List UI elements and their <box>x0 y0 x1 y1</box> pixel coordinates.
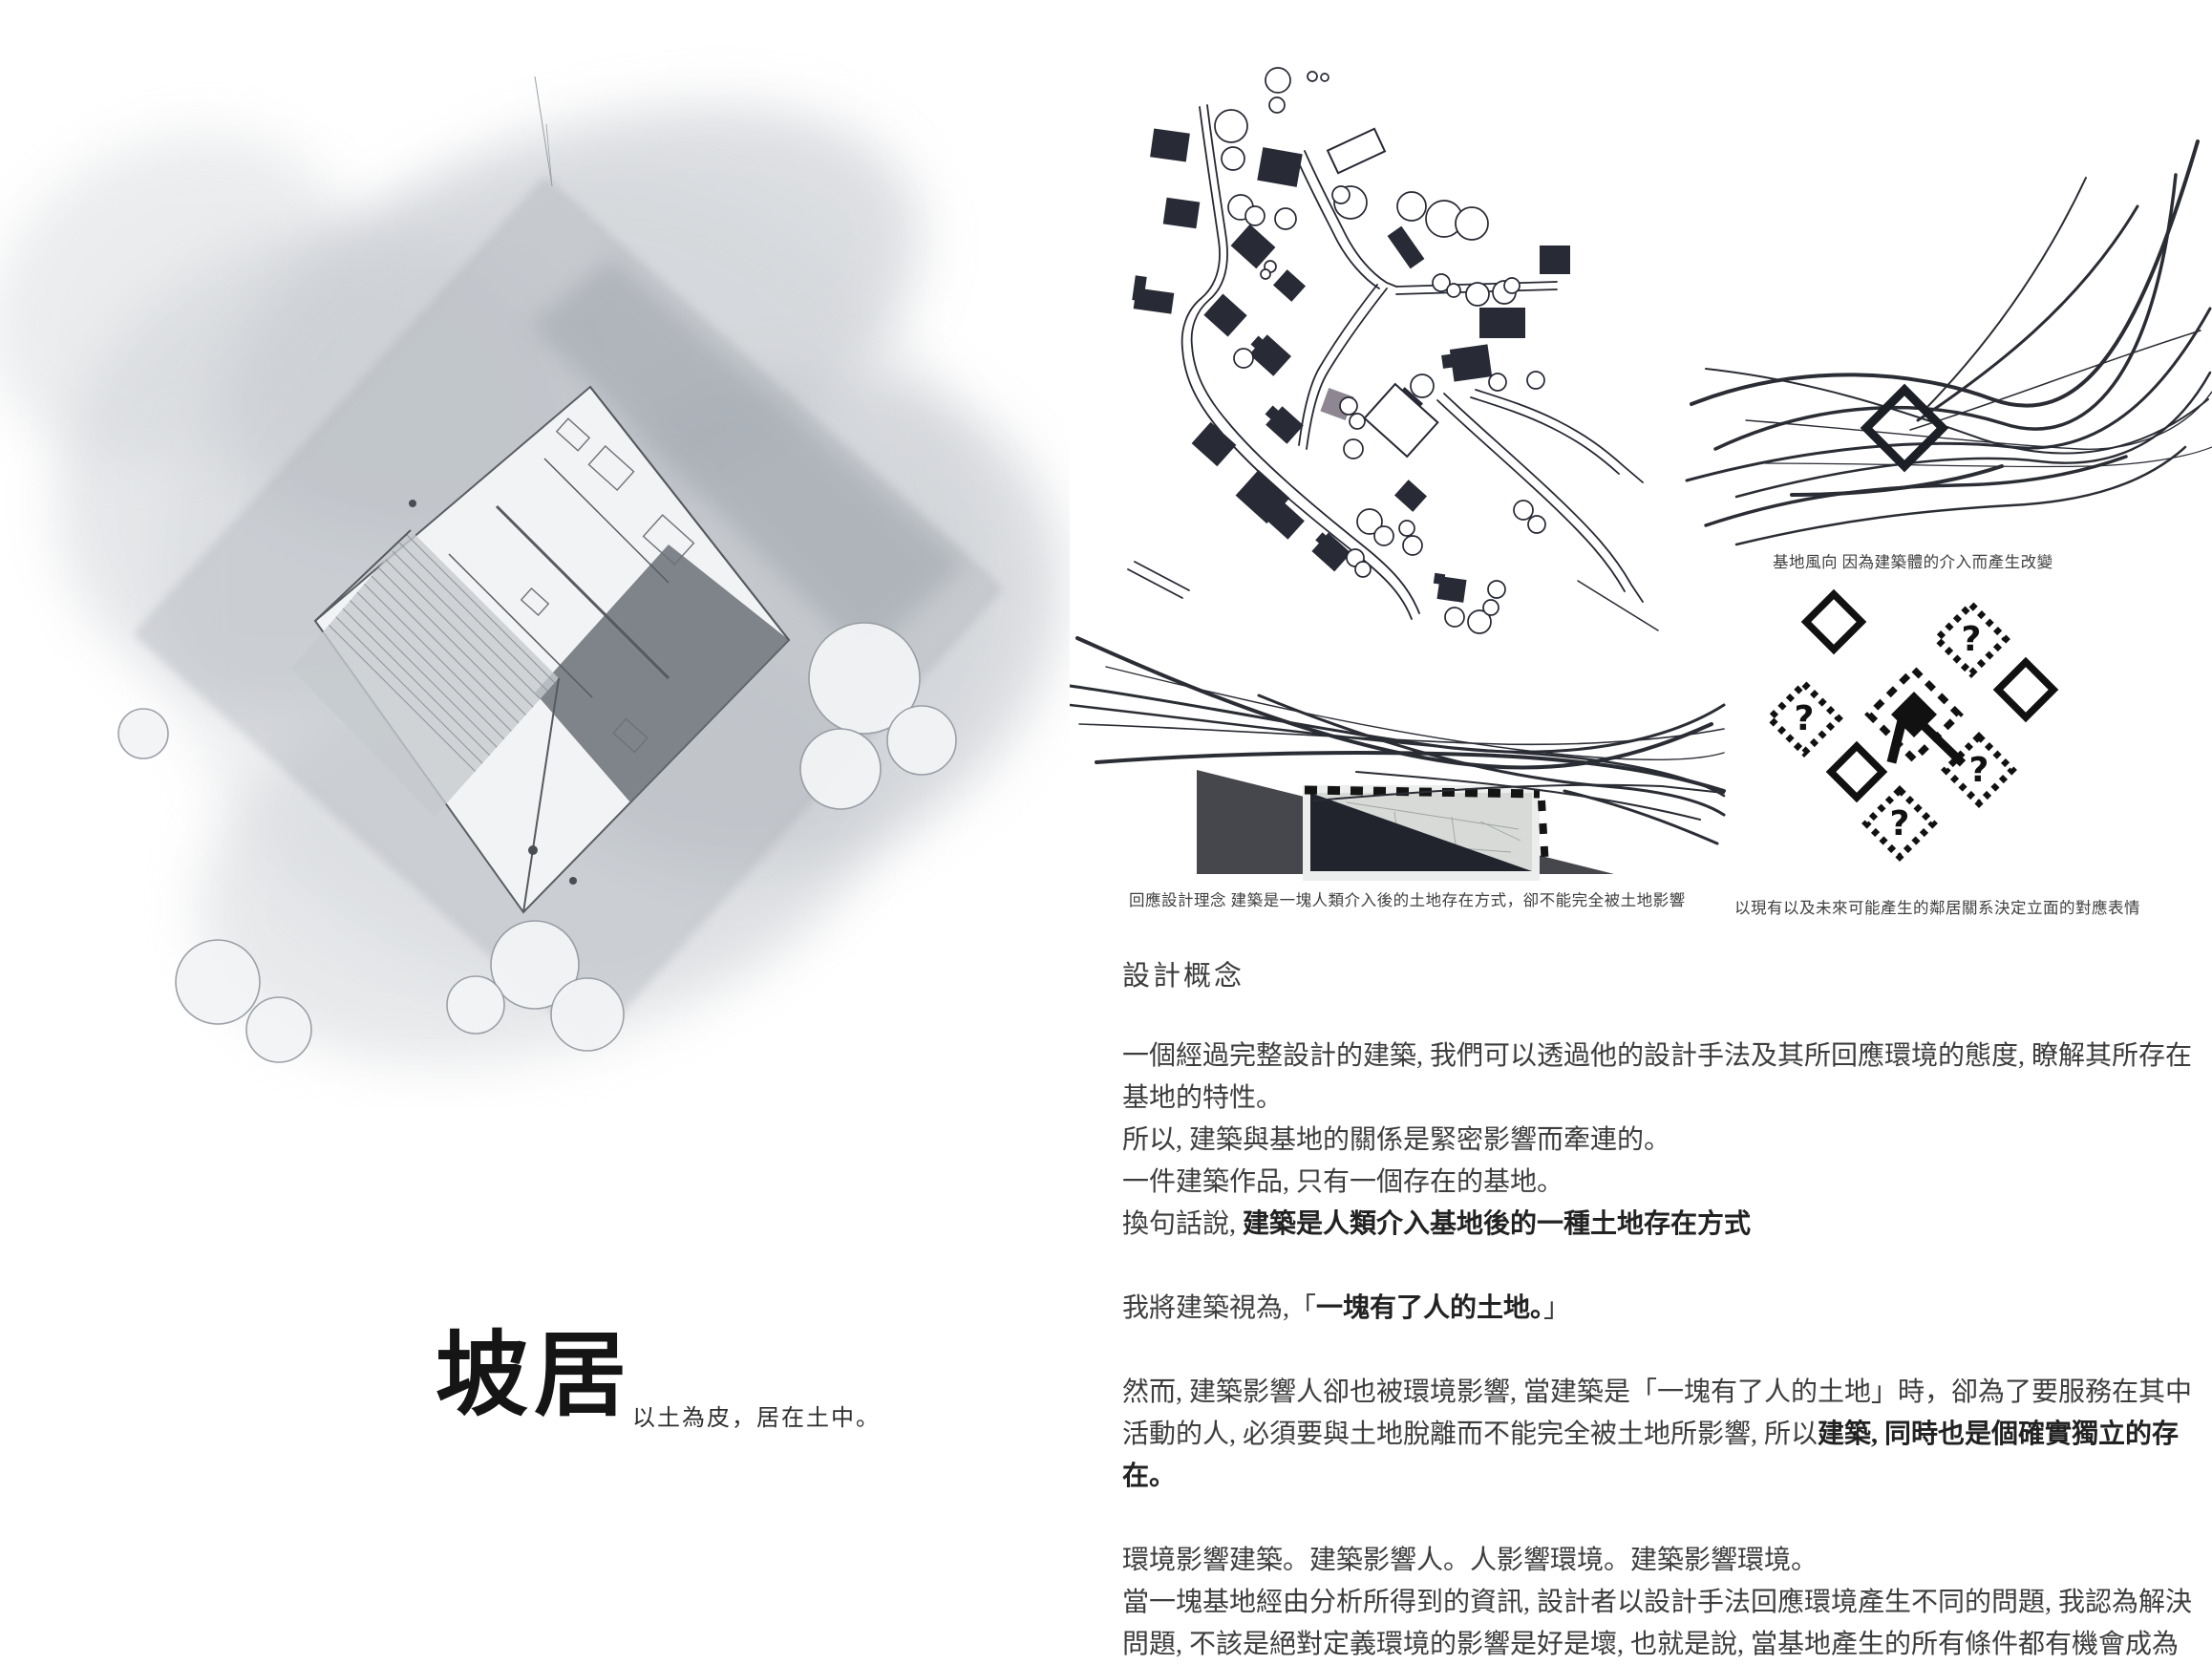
site-sketch-drawing <box>0 10 1070 1108</box>
project-subtitle: 以土為皮，居在土中。 <box>632 1398 881 1432</box>
wind-flow-diagram <box>1677 84 2212 562</box>
concept-paragraph: 一件建築作品, 只有一個存在的基地。 <box>1122 1162 2197 1204</box>
concept-paragraph: 環境影響建築。建築影響人。人影響環境。建築影響環境。 <box>1122 1540 2197 1582</box>
svg-text:?: ? <box>1969 751 1989 790</box>
concept-body-text: 一個經過完整設計的建築, 我們可以透過他的設計手法及其所回應環境的態度, 瞭解其… <box>1122 1035 2197 1665</box>
concept-section: 設計概念 一個經過完整設計的建築, 我們可以透過他的設計手法及其所回應環境的態度… <box>1122 953 2197 1665</box>
concept-heading: 設計概念 <box>1122 953 2197 993</box>
concept-paragraph: 然而, 建築影響人卻也被環境影響, 當建築是「一塊有了人的土地」時，卻為了要服務… <box>1122 1372 2197 1498</box>
site-plan-map <box>1094 53 1686 640</box>
svg-text:?: ? <box>1890 804 1910 843</box>
project-title: 坡居 <box>436 1330 632 1422</box>
svg-text:?: ? <box>1795 699 1815 738</box>
wind-diagram-caption: 基地風向 因為建築體的介入而產生改變 <box>1773 549 2053 572</box>
svg-text:?: ? <box>1962 620 1982 659</box>
concept-paragraph: 換句話說, 建築是人類介入基地後的一種土地存在方式 <box>1122 1204 2197 1246</box>
concept-paragraph: 當一塊基地經由分析所得到的資訊, 設計者以設計手法回應環境產生不同的問題, 我認… <box>1122 1582 2197 1665</box>
concept-paragraph: 我將建築視為,「一塊有了人的土地。」 <box>1122 1288 2197 1330</box>
concept-paragraph: 一個經過完整設計的建築, 我們可以透過他的設計手法及其所回應環境的態度, 瞭解其… <box>1122 1035 2197 1120</box>
section-diagram <box>1070 611 1729 898</box>
portfolio-page: 坡居 以土為皮，居在土中。 基地風向 因為建築體的介入而產生改變 回應設計理念 … <box>0 0 2212 1665</box>
neighbor-relation-diagram: ???? <box>1753 571 2211 886</box>
concept-paragraph: 所以, 建築與基地的關係是緊密影響而牽連的。 <box>1122 1120 2197 1162</box>
section-diagram-caption: 回應設計理念 建築是一塊人類介入後的土地存在方式，卻不能完全被土地影響 <box>1129 887 1686 910</box>
facade-diagram-caption: 以現有以及未來可能產生的鄰居關系決定立面的對應表情 <box>1734 895 2140 918</box>
